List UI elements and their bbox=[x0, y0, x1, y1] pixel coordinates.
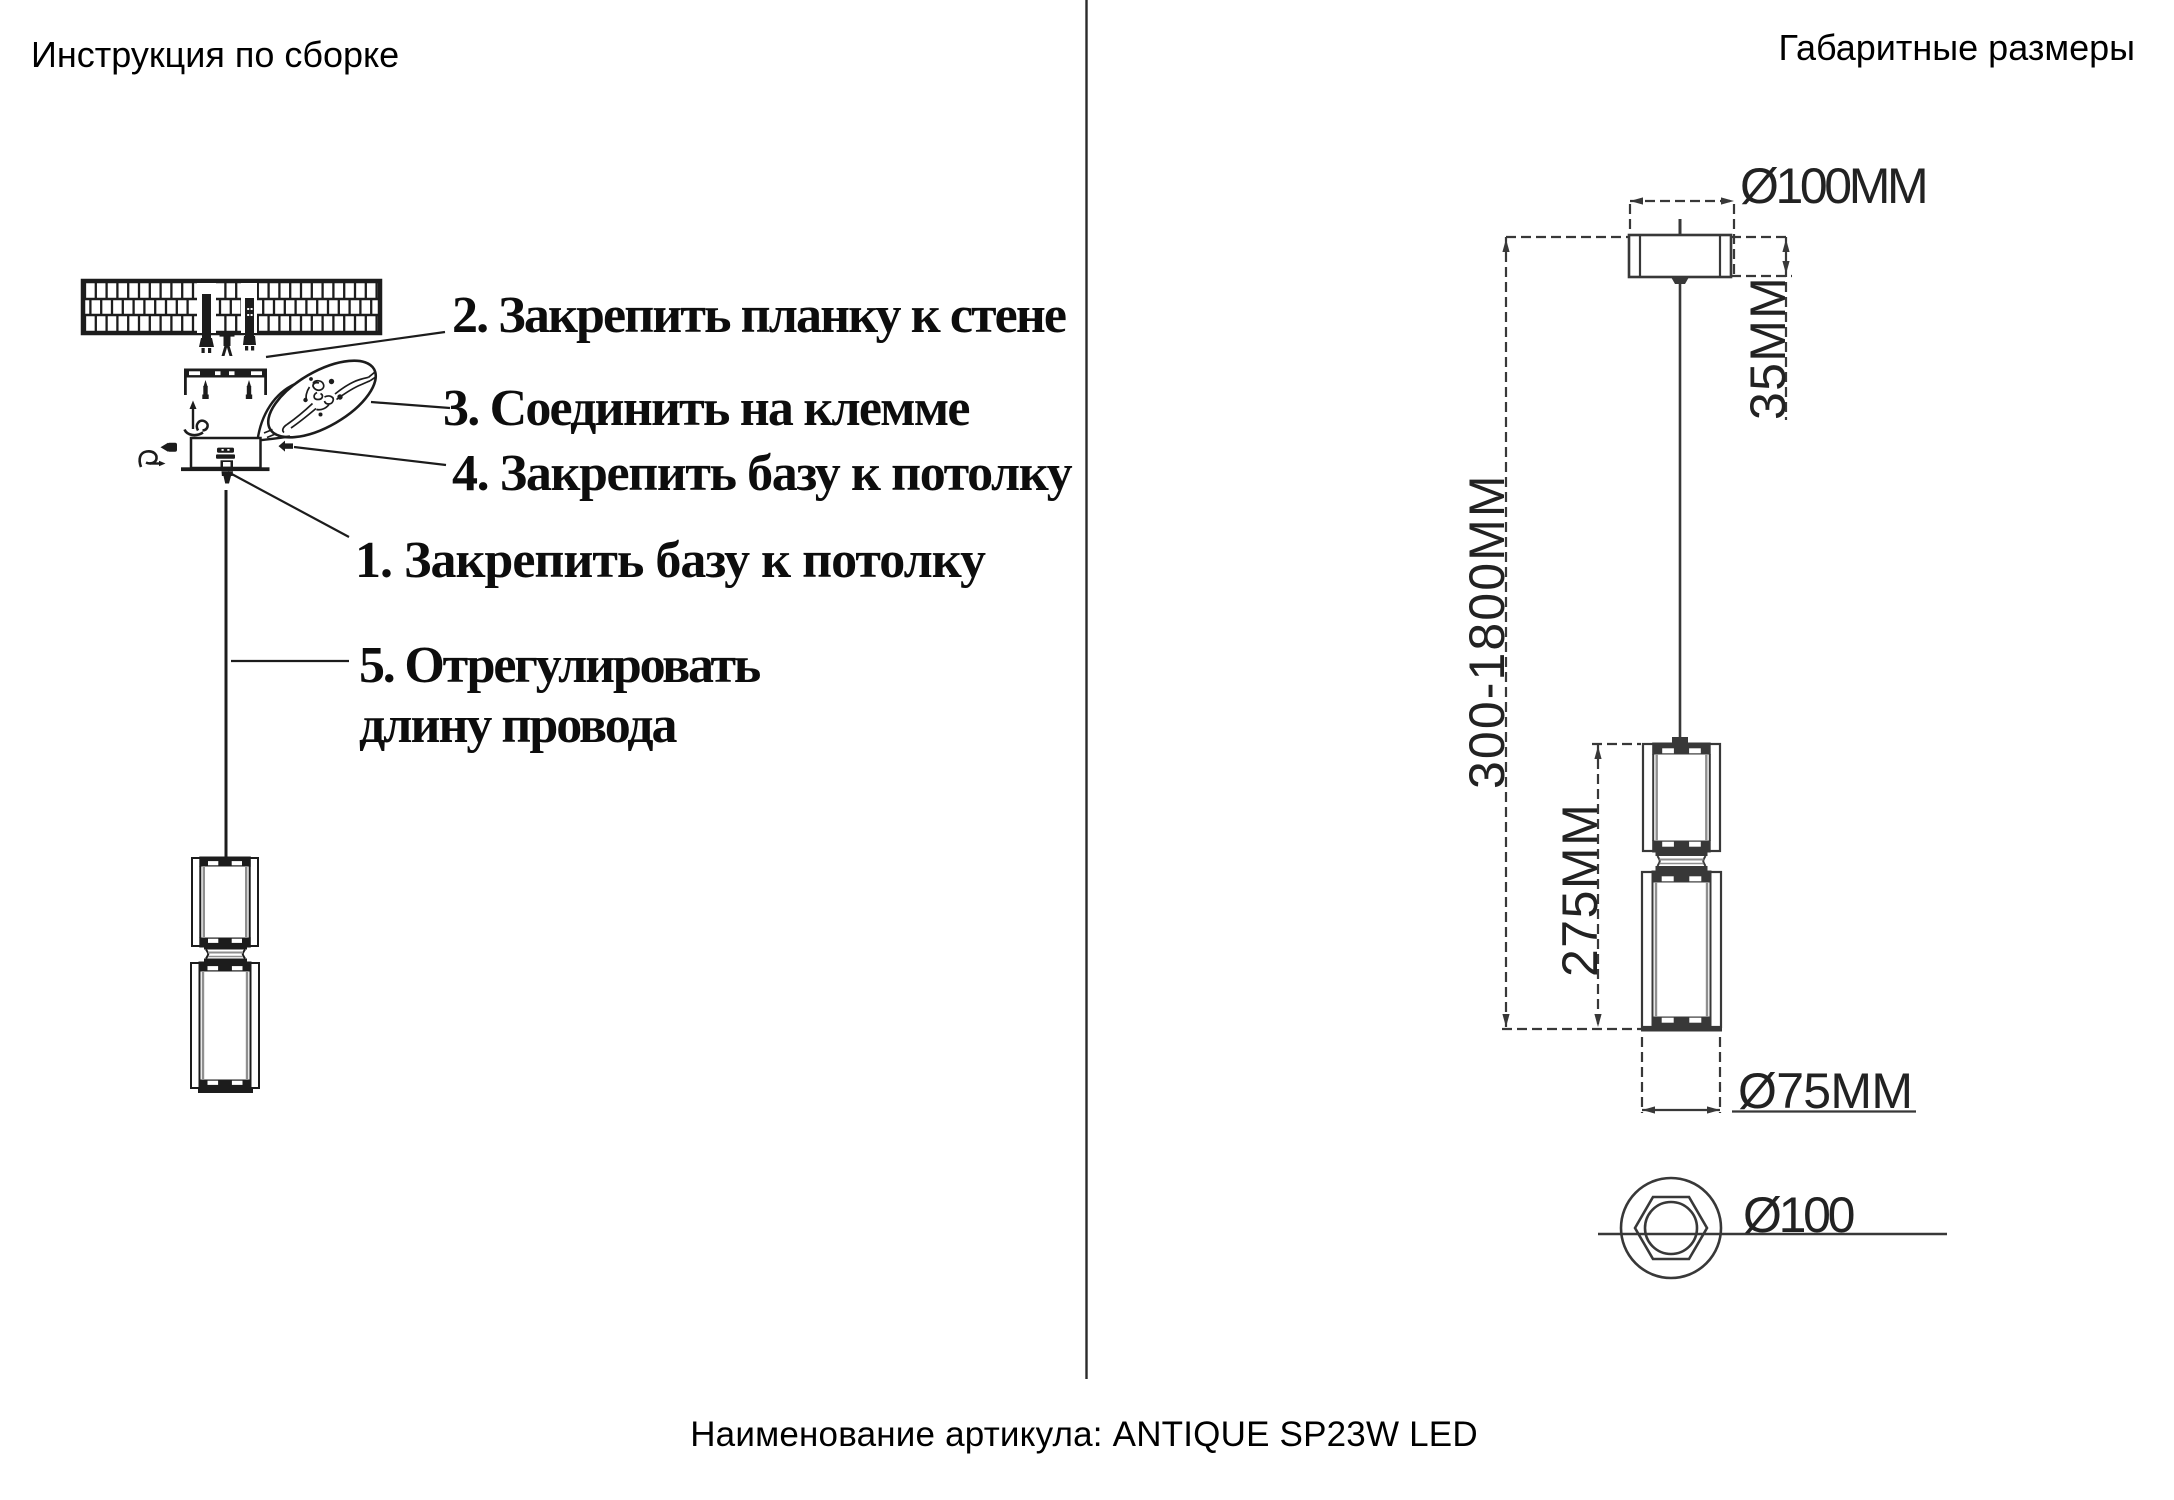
svg-text:Габаритные размеры: Габаритные размеры bbox=[1778, 27, 2135, 68]
svg-text:3. Соединить на клемме: 3. Соединить на клемме bbox=[443, 380, 969, 437]
svg-text:Наименование артикула: ANTIQUE: Наименование артикула: ANTIQUE SP23W LED bbox=[690, 1415, 1478, 1454]
svg-text:1. Закрепить базу к потолку: 1. Закрепить базу к потолку bbox=[355, 532, 986, 589]
svg-text:300-1800MM: 300-1800MM bbox=[1459, 473, 1515, 789]
svg-text:Инструкция по сборке: Инструкция по сборке bbox=[31, 34, 399, 75]
svg-text:2. Закрепить планку к стене: 2. Закрепить планку к стене bbox=[452, 287, 1066, 344]
svg-text:Ø100: Ø100 bbox=[1743, 1187, 1854, 1243]
svg-text:275MM: 275MM bbox=[1552, 803, 1608, 977]
svg-text:Ø75MM: Ø75MM bbox=[1738, 1063, 1912, 1119]
svg-text:35MM: 35MM bbox=[1740, 276, 1796, 420]
svg-text:Ø100MM: Ø100MM bbox=[1740, 158, 1925, 214]
svg-text:5. Отрегулировать: 5. Отрегулировать bbox=[359, 637, 761, 694]
svg-text:4. Закрепить базу к потолку: 4. Закрепить базу к потолку bbox=[452, 445, 1073, 502]
svg-text:длину провода: длину провода bbox=[359, 697, 678, 754]
